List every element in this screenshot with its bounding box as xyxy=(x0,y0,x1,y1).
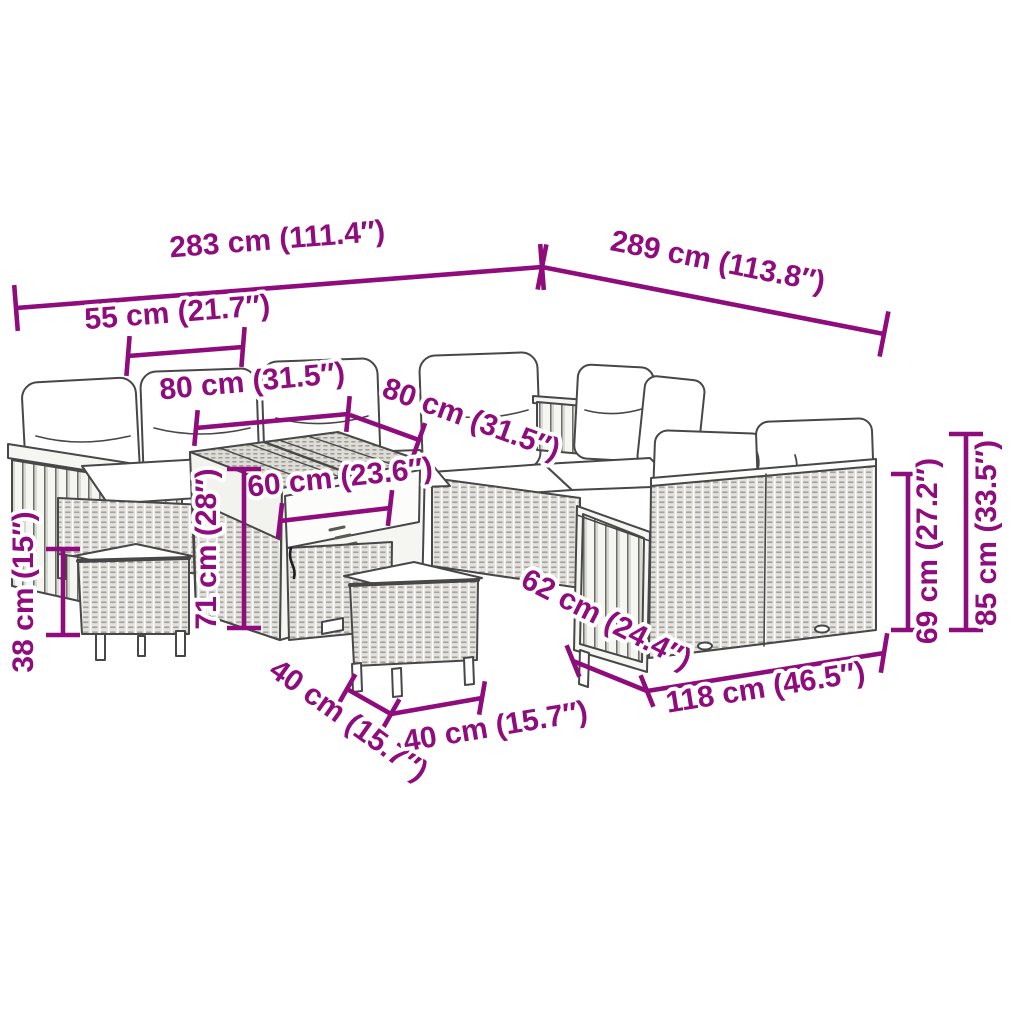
dim-38-label: 38 cm (15″) xyxy=(7,511,40,672)
dim-289: 289 cm (113.8″) xyxy=(538,224,889,356)
stool-leg xyxy=(96,634,105,660)
stool-leg xyxy=(464,657,474,685)
stool-leg xyxy=(392,668,402,697)
back-panel-rattan xyxy=(649,466,876,658)
stool-body-rattan xyxy=(350,580,478,666)
diagram-svg: 283 cm (111.4″) 289 cm (113.8″) 55 cm (2… xyxy=(0,0,1024,1024)
panel-foot xyxy=(698,643,712,650)
dim-85-label: 85 cm (33.5″) xyxy=(970,440,1003,626)
dim-40-left: 40 cm (15.7″) xyxy=(263,653,434,788)
panel-foot xyxy=(815,626,829,633)
stool-leg xyxy=(176,631,185,656)
stool-center xyxy=(344,562,482,697)
dimension-diagram: 283 cm (111.4″) 289 cm (113.8″) 55 cm (2… xyxy=(0,0,1024,1024)
drawer-notch xyxy=(322,618,343,634)
stool-left xyxy=(74,544,192,660)
dim-55: 55 cm (21.7″) xyxy=(83,289,271,376)
dim-40-left-label: 40 cm (15.7″) xyxy=(263,653,434,788)
dim-85: 85 cm (33.5″) xyxy=(949,434,1003,630)
dim-69-label: 69 cm (27.2″) xyxy=(911,458,944,644)
dim-40-right: 40 cm (15.7″) xyxy=(391,681,590,758)
stool-body-rattan xyxy=(78,558,189,634)
dim-69: 69 cm (27.2″) xyxy=(891,458,944,644)
stool-leg xyxy=(138,636,145,656)
dim-71-label: 71 cm (28″) xyxy=(190,468,223,629)
dim-118-label: 118 cm (46.5″) xyxy=(664,656,868,720)
dim-40-right-label: 40 cm (15.7″) xyxy=(401,695,590,758)
dim-283-label: 283 cm (111.4″) xyxy=(168,215,386,265)
